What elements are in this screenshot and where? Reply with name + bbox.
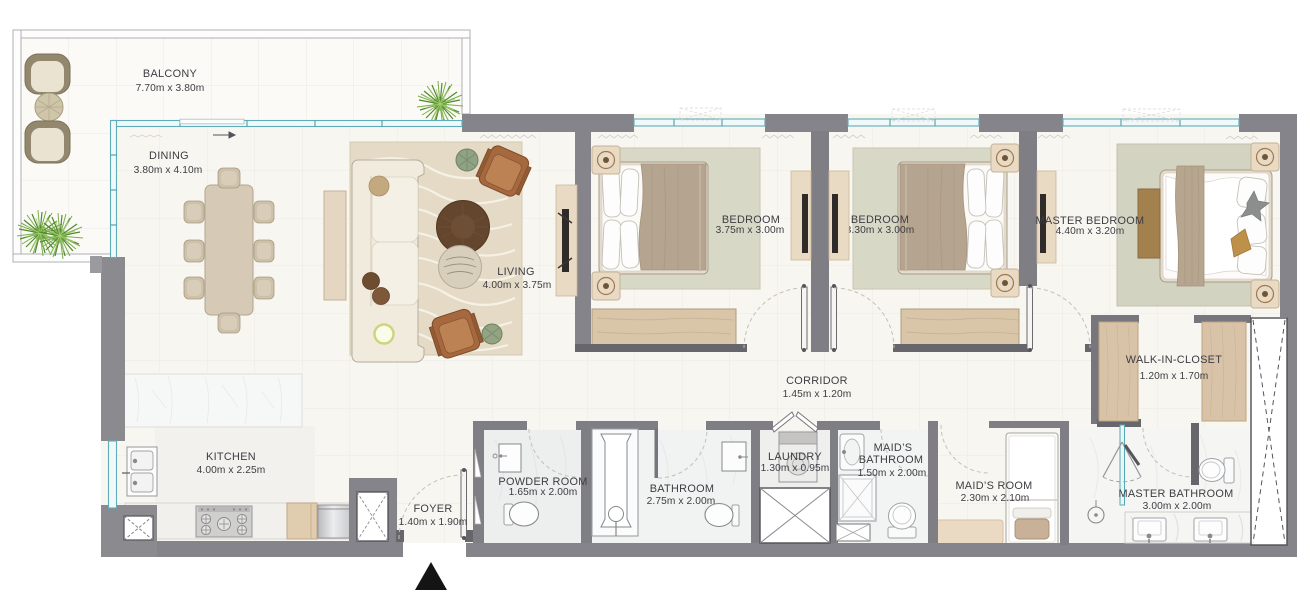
svg-text:1.65m x 2.00m: 1.65m x 2.00m <box>509 487 578 498</box>
svg-text:1.20m x 1.70m: 1.20m x 1.70m <box>1140 371 1209 382</box>
svg-text:2.30m x 2.10m: 2.30m x 2.10m <box>961 493 1030 504</box>
svg-text:7.70m x 3.80m: 7.70m x 3.80m <box>136 83 205 94</box>
svg-text:1.45m x 1.20m: 1.45m x 1.20m <box>783 389 852 400</box>
svg-text:3.30m x 3.00m: 3.30m x 3.00m <box>846 225 915 236</box>
svg-text:3.75m x 3.00m: 3.75m x 3.00m <box>716 225 785 236</box>
svg-text:1.30m x 0.95m: 1.30m x 0.95m <box>761 463 830 474</box>
svg-text:MAID’S ROOM: MAID’S ROOM <box>955 480 1032 492</box>
svg-text:2.75m x 2.00m: 2.75m x 2.00m <box>647 496 716 507</box>
svg-text:4.00m x 2.25m: 4.00m x 2.25m <box>197 465 266 476</box>
svg-text:FOYER: FOYER <box>413 503 452 515</box>
svg-text:LIVING: LIVING <box>497 266 535 278</box>
svg-text:DINING: DINING <box>149 150 189 162</box>
svg-text:3.80m x 4.10m: 3.80m x 4.10m <box>134 165 203 176</box>
svg-text:1.50m x 2.00m: 1.50m x 2.00m <box>858 468 927 479</box>
svg-text:KITCHEN: KITCHEN <box>206 451 256 463</box>
svg-text:BATHROOM: BATHROOM <box>859 454 924 466</box>
svg-text:LAUNDRY: LAUNDRY <box>768 451 822 463</box>
svg-text:1.40m x 1.90m: 1.40m x 1.90m <box>399 517 468 528</box>
svg-text:CORRIDOR: CORRIDOR <box>786 375 848 387</box>
svg-text:3.00m x 2.00m: 3.00m x 2.00m <box>1143 501 1212 512</box>
svg-text:WALK-IN-CLOSET: WALK-IN-CLOSET <box>1126 354 1222 366</box>
svg-text:BALCONY: BALCONY <box>143 68 198 80</box>
svg-text:BATHROOM: BATHROOM <box>650 483 715 495</box>
svg-text:MASTER BATHROOM: MASTER BATHROOM <box>1118 488 1233 500</box>
svg-text:4.00m x 3.75m: 4.00m x 3.75m <box>483 280 552 291</box>
svg-text:4.40m x 3.20m: 4.40m x 3.20m <box>1056 226 1125 237</box>
svg-text:MAID’S: MAID’S <box>874 442 913 454</box>
